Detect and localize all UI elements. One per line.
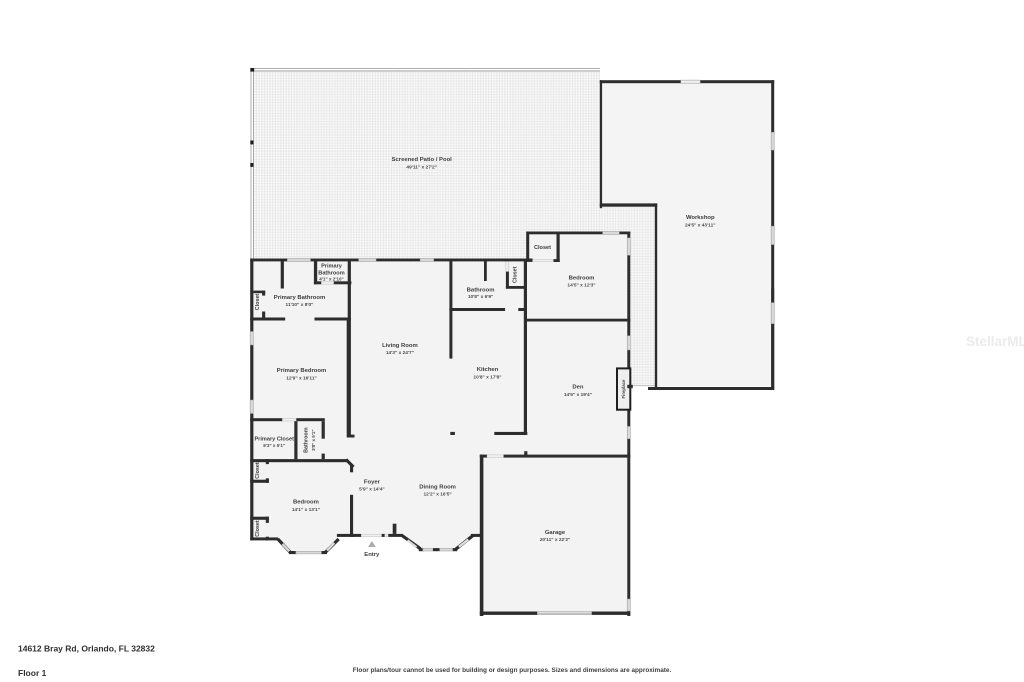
- svg-text:Bathroom: Bathroom: [304, 427, 310, 453]
- svg-text:10'8" x 6'9": 10'8" x 6'9": [468, 294, 494, 300]
- svg-text:Workshop: Workshop: [686, 215, 715, 221]
- svg-text:14'3" x 24'7": 14'3" x 24'7": [386, 350, 414, 356]
- svg-text:14'5" x 12'3": 14'5" x 12'3": [567, 283, 595, 289]
- svg-text:Closet: Closet: [255, 520, 261, 537]
- svg-text:Closet: Closet: [255, 462, 261, 479]
- svg-text:StellarMLS: StellarMLS: [966, 334, 1024, 349]
- svg-text:Floor plans/tour cannot be use: Floor plans/tour cannot be used for buil…: [353, 667, 672, 674]
- svg-text:5'9" x 14'4": 5'9" x 14'4": [359, 486, 385, 492]
- svg-text:49'11" x 27'2": 49'11" x 27'2": [406, 164, 437, 170]
- svg-text:Bedroom: Bedroom: [293, 500, 319, 506]
- svg-text:Floor 1: Floor 1: [18, 668, 47, 678]
- svg-text:14'1" x 13'1": 14'1" x 13'1": [292, 507, 320, 513]
- svg-text:Screened Patio / Pool: Screened Patio / Pool: [392, 157, 453, 163]
- svg-text:Fireplace: Fireplace: [621, 379, 626, 398]
- svg-text:Primary: Primary: [321, 264, 343, 270]
- svg-text:3'8" x 5'1": 3'8" x 5'1": [311, 429, 316, 450]
- svg-text:14612 Bray Rd, Orlando, FL 328: 14612 Bray Rd, Orlando, FL 32832: [18, 644, 155, 654]
- svg-text:11'10" x 8'0": 11'10" x 8'0": [286, 302, 314, 308]
- svg-text:Bathroom: Bathroom: [467, 288, 495, 294]
- svg-text:Den: Den: [572, 385, 584, 391]
- svg-text:14'5" x 19'4": 14'5" x 19'4": [564, 392, 592, 398]
- svg-text:Primary Bedroom: Primary Bedroom: [277, 368, 326, 374]
- svg-text:Garage: Garage: [545, 530, 566, 536]
- svg-text:20'11" x 22'2": 20'11" x 22'2": [540, 537, 571, 543]
- svg-text:Living Room: Living Room: [382, 343, 418, 349]
- svg-text:Closet: Closet: [534, 245, 551, 251]
- svg-text:12'9" x 16'11": 12'9" x 16'11": [286, 375, 317, 381]
- svg-text:Primary Bathroom: Primary Bathroom: [274, 295, 325, 301]
- svg-text:12'2" x 16'5": 12'2" x 16'5": [424, 492, 452, 498]
- svg-text:Primary Closet: Primary Closet: [254, 436, 294, 442]
- svg-text:24'5" x 43'11": 24'5" x 43'11": [685, 222, 716, 228]
- svg-text:10'8" x 17'8": 10'8" x 17'8": [473, 374, 501, 380]
- svg-text:Closet: Closet: [255, 294, 261, 311]
- svg-text:Foyer: Foyer: [364, 480, 381, 486]
- svg-text:Bedroom: Bedroom: [569, 275, 595, 281]
- svg-text:8'3" x 5'1": 8'3" x 5'1": [263, 443, 285, 448]
- svg-text:4'1" x 2'10": 4'1" x 2'10": [319, 276, 343, 281]
- svg-text:Closet: Closet: [513, 266, 519, 283]
- svg-text:Kitchen: Kitchen: [477, 367, 499, 373]
- svg-text:Entry: Entry: [364, 552, 380, 558]
- svg-text:Dining Room: Dining Room: [419, 484, 456, 490]
